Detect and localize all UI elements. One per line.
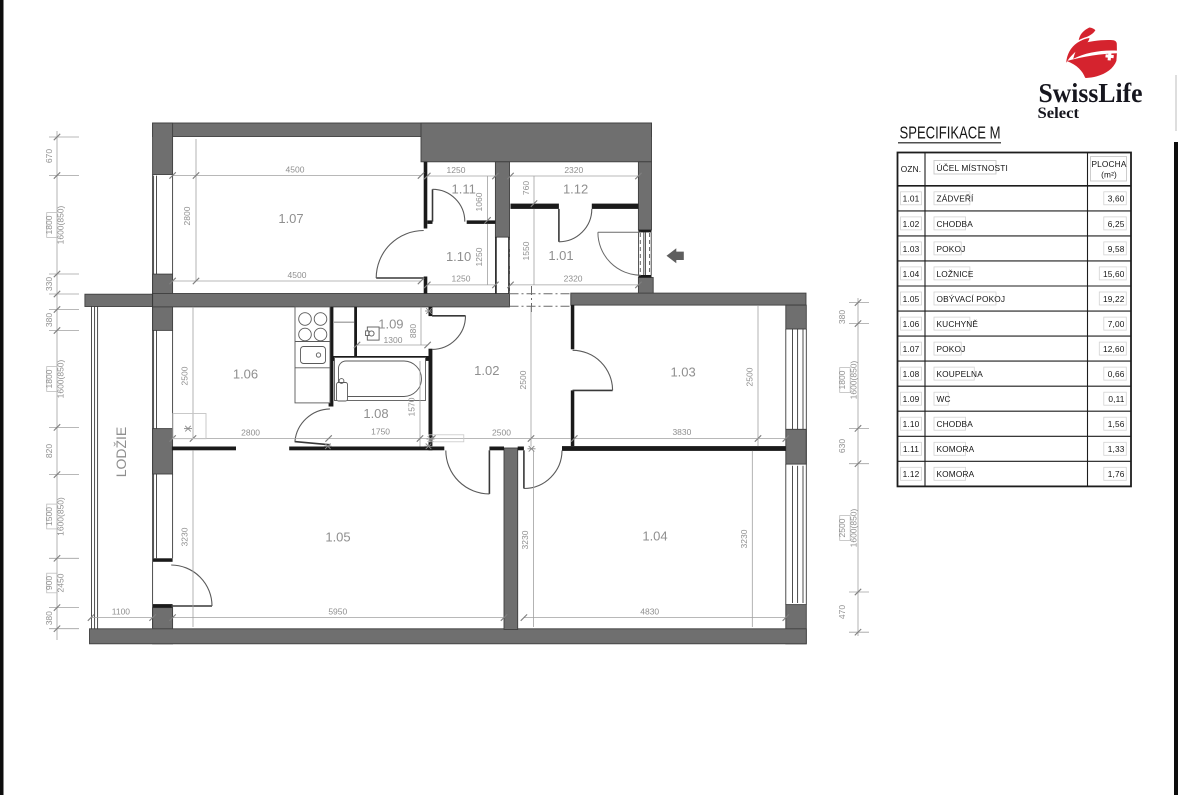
svg-text:2450: 2450 [56, 573, 66, 592]
svg-text:4500: 4500 [288, 270, 307, 280]
svg-text:2500: 2500 [492, 427, 511, 437]
svg-text:2320: 2320 [564, 274, 583, 284]
svg-text:1060: 1060 [474, 192, 484, 211]
svg-text:1.03: 1.03 [670, 365, 695, 380]
svg-text:1250: 1250 [474, 247, 484, 266]
svg-text:LODŽIE: LODŽIE [113, 427, 129, 478]
svg-text:1.03: 1.03 [903, 244, 920, 254]
svg-text:470: 470 [837, 605, 847, 619]
svg-text:KOUPELNA: KOUPELNA [937, 369, 984, 379]
svg-text:3230: 3230 [739, 529, 749, 548]
svg-text:ZÁDVEŘÍ: ZÁDVEŘÍ [937, 194, 975, 204]
svg-text:1600(850): 1600(850) [56, 205, 66, 244]
svg-text:1.11: 1.11 [452, 182, 476, 197]
svg-text:3230: 3230 [180, 527, 190, 546]
svg-text:OBÝVACÍ POKOJ: OBÝVACÍ POKOJ [937, 294, 1006, 304]
svg-text:12,60: 12,60 [1103, 344, 1125, 354]
svg-text:1550: 1550 [521, 241, 531, 260]
svg-text:2500: 2500 [518, 370, 528, 389]
svg-text:1800: 1800 [44, 369, 54, 388]
svg-text:1.02: 1.02 [903, 219, 920, 229]
svg-text:2800: 2800 [182, 206, 192, 225]
svg-text:19,22: 19,22 [1103, 294, 1125, 304]
svg-text:820: 820 [44, 444, 54, 458]
svg-text:1800: 1800 [837, 370, 847, 389]
svg-text:15,60: 15,60 [1103, 269, 1125, 279]
svg-text:OZN.: OZN. [901, 164, 921, 174]
svg-text:2500: 2500 [745, 367, 755, 386]
svg-text:KOMORA: KOMORA [937, 444, 975, 454]
svg-text:3,60: 3,60 [1108, 194, 1125, 204]
svg-text:Select: Select [1038, 105, 1080, 122]
svg-text:2500: 2500 [837, 518, 847, 537]
svg-text:WC: WC [937, 394, 951, 404]
svg-text:1.06: 1.06 [903, 319, 920, 329]
svg-text:1.12: 1.12 [903, 469, 920, 479]
svg-text:1.08: 1.08 [363, 406, 388, 421]
svg-text:1,76: 1,76 [1108, 469, 1125, 479]
svg-text:1.02: 1.02 [474, 363, 499, 378]
svg-text:1,56: 1,56 [1108, 419, 1125, 429]
svg-text:1.09: 1.09 [378, 317, 403, 332]
svg-text:4830: 4830 [640, 607, 659, 617]
svg-text:LOŽNICE: LOŽNICE [937, 269, 974, 279]
svg-text:1750: 1750 [371, 426, 390, 436]
svg-text:(m²): (m²) [1101, 170, 1117, 180]
svg-text:1.04: 1.04 [903, 269, 920, 279]
svg-text:1500: 1500 [44, 507, 54, 526]
svg-text:KOMORA: KOMORA [937, 469, 975, 479]
svg-text:1250: 1250 [452, 274, 471, 284]
svg-text:1250: 1250 [447, 165, 466, 175]
svg-text:1.10: 1.10 [446, 249, 471, 264]
svg-text:1.09: 1.09 [903, 394, 920, 404]
svg-text:1800: 1800 [44, 215, 54, 234]
svg-text:3230: 3230 [520, 530, 530, 549]
svg-text:760: 760 [521, 181, 531, 195]
svg-text:5950: 5950 [328, 607, 347, 617]
svg-text:CHODBA: CHODBA [937, 419, 974, 429]
svg-text:380: 380 [837, 310, 847, 324]
svg-text:2500: 2500 [180, 366, 190, 385]
svg-text:1.07: 1.07 [278, 211, 303, 226]
svg-text:3830: 3830 [672, 427, 691, 437]
svg-text:1.11: 1.11 [903, 444, 919, 454]
svg-text:0,11: 0,11 [1108, 394, 1124, 404]
svg-text:1.05: 1.05 [325, 530, 350, 545]
svg-text:CHODBA: CHODBA [937, 219, 974, 229]
svg-text:380: 380 [44, 313, 54, 327]
svg-text:6,25: 6,25 [1108, 219, 1125, 229]
svg-text:0,66: 0,66 [1108, 369, 1125, 379]
svg-text:1600(850): 1600(850) [849, 508, 859, 547]
svg-text:1.04: 1.04 [642, 529, 667, 544]
svg-text:1.01: 1.01 [548, 248, 573, 263]
svg-text:1570: 1570 [407, 397, 417, 416]
svg-text:1600(850): 1600(850) [56, 497, 66, 536]
svg-text:ÚČEL MÍSTNOSTI: ÚČEL MÍSTNOSTI [937, 163, 1008, 173]
svg-text:880: 880 [408, 324, 418, 338]
svg-text:POKOJ: POKOJ [937, 244, 966, 254]
svg-text:1.05: 1.05 [903, 294, 920, 304]
svg-text:9,58: 9,58 [1108, 244, 1125, 254]
svg-text:POKOJ: POKOJ [937, 344, 966, 354]
svg-text:1300: 1300 [384, 335, 403, 345]
svg-text:PLOCHA: PLOCHA [1091, 159, 1126, 169]
svg-text:1.12: 1.12 [563, 182, 588, 197]
svg-text:1,33: 1,33 [1108, 444, 1125, 454]
svg-text:1.07: 1.07 [903, 344, 920, 354]
svg-text:630: 630 [837, 439, 847, 453]
svg-text:1.01: 1.01 [903, 194, 920, 204]
svg-text:330: 330 [44, 277, 54, 291]
svg-text:1100: 1100 [112, 607, 131, 617]
svg-text:4500: 4500 [286, 165, 305, 175]
svg-text:1600(850): 1600(850) [56, 359, 66, 398]
svg-text:SPECIFIKACE M: SPECIFIKACE M [900, 123, 1001, 143]
svg-text:1.08: 1.08 [903, 369, 920, 379]
svg-text:1.10: 1.10 [903, 419, 920, 429]
svg-text:SwissLife: SwissLife [1039, 78, 1143, 108]
svg-text:2320: 2320 [564, 165, 583, 175]
svg-text:1600(850): 1600(850) [849, 360, 859, 399]
svg-text:380: 380 [44, 611, 54, 625]
svg-text:KUCHYNĚ: KUCHYNĚ [937, 319, 979, 329]
svg-text:670: 670 [44, 149, 54, 163]
svg-text:900: 900 [44, 576, 54, 590]
svg-text:1.06: 1.06 [233, 367, 258, 382]
svg-text:2800: 2800 [241, 427, 260, 437]
svg-text:7,00: 7,00 [1108, 319, 1125, 329]
